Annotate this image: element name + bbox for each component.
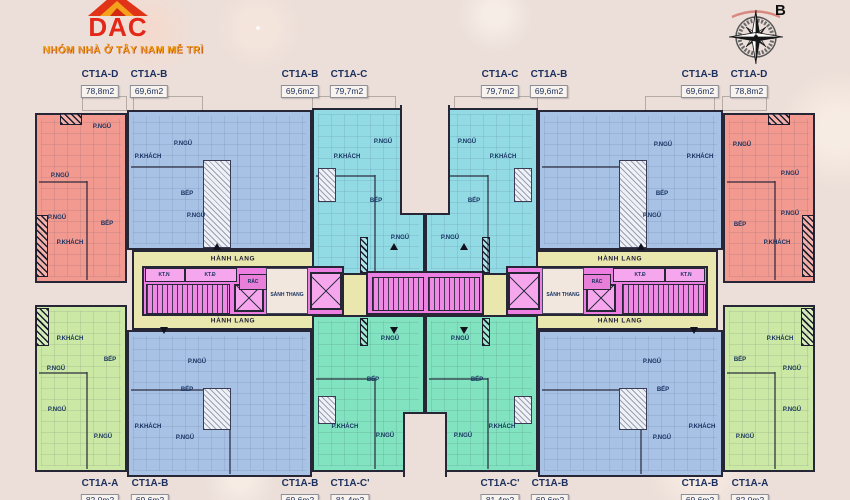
room-label: P.NGỦ bbox=[391, 235, 409, 241]
room-label: P.NGỦ bbox=[783, 366, 801, 372]
room-label: P.KHÁCH bbox=[332, 424, 359, 430]
balcony-hatch bbox=[482, 318, 490, 346]
room-label: P.KHÁCH bbox=[57, 240, 84, 246]
staircase bbox=[622, 284, 706, 314]
unit-callout-ct1a-b: CT1A-B69,6m2 bbox=[681, 478, 719, 500]
room-label: P.NGỦ bbox=[188, 359, 206, 365]
unit-callout-area: 69,6m2 bbox=[130, 85, 168, 98]
interior-wall bbox=[774, 181, 776, 280]
unit-callout-area: 69,6m2 bbox=[281, 85, 319, 98]
unit-callout-name: CT1A-A bbox=[731, 478, 769, 489]
interior-wall bbox=[727, 181, 775, 183]
room-label: P.KHÁCH bbox=[687, 154, 714, 160]
unit-callout-ct1a-cp: CT1A-C'81,4m2 bbox=[330, 478, 369, 500]
unit-callout-area: 81,4m2 bbox=[481, 494, 519, 500]
core-label: RÁC bbox=[248, 279, 259, 285]
unit-callout-area: 82,0m2 bbox=[731, 494, 769, 500]
interior-wall bbox=[86, 372, 88, 469]
balcony-hatch bbox=[360, 318, 368, 346]
elevator bbox=[508, 272, 540, 310]
room-label: P.NGỦ bbox=[451, 336, 469, 342]
staircase bbox=[146, 284, 230, 314]
entry-arrow-icon bbox=[390, 243, 398, 250]
bathroom-block bbox=[203, 388, 231, 430]
room-label: P.NGỦ bbox=[47, 366, 65, 372]
room-label: P.KHÁCH bbox=[490, 154, 517, 160]
room-label: P.NGỦ bbox=[93, 124, 111, 130]
balcony-hatch bbox=[60, 113, 82, 125]
room-label: BẾP bbox=[656, 191, 668, 197]
unit-callout-name: CT1A-B bbox=[531, 478, 569, 489]
room-label: P.NGỦ bbox=[94, 434, 112, 440]
balcony-hatch bbox=[36, 308, 49, 346]
room-label: BẾP bbox=[471, 377, 483, 383]
unit-callout-ct1a-b: CT1A-B69,6m2 bbox=[681, 69, 719, 99]
unit-callout-area: 69,6m2 bbox=[681, 494, 719, 500]
unit-callout-name: CT1A-C' bbox=[480, 478, 519, 489]
interior-wall bbox=[374, 175, 376, 272]
room-label: P.NGỦ bbox=[654, 142, 672, 148]
room-label: P.NGỦ bbox=[48, 215, 66, 221]
unit-callout-ct1a-cp: CT1A-C'81,4m2 bbox=[480, 478, 519, 500]
unit-callout-ct1a-b: CT1A-B69,6m2 bbox=[281, 478, 319, 500]
corridor-label: HÀNH LANG bbox=[211, 256, 255, 263]
unit-callout-name: CT1A-A bbox=[81, 478, 119, 489]
unit-callout-ct1a-b: CT1A-B69,6m2 bbox=[130, 69, 168, 99]
interior-wall bbox=[374, 378, 376, 469]
stair-lobby bbox=[266, 268, 308, 314]
core-label: KT.Đ bbox=[634, 272, 645, 278]
room-label: P.NGỦ bbox=[781, 171, 799, 177]
room-label: P.NGỦ bbox=[174, 141, 192, 147]
unit-callout-name: CT1A-B bbox=[530, 69, 568, 80]
core-label: KT.Đ bbox=[204, 272, 215, 278]
unit-callout-ct1a-b: CT1A-B69,6m2 bbox=[530, 69, 568, 99]
balcony-hatch bbox=[482, 237, 490, 273]
staircase bbox=[372, 277, 424, 311]
unit-callout-area: 69,6m2 bbox=[131, 494, 169, 500]
room-label: P.NGỦ bbox=[187, 213, 205, 219]
floor-plan: HÀNH LANGHÀNH LANGHÀNH LANGHÀNH LANGKT.N… bbox=[0, 0, 850, 500]
slogan-text: NHÓM NHÀ Ở TÂY NAM MỄ TRÌ bbox=[18, 45, 228, 56]
unit-callout-area: 69,6m2 bbox=[681, 85, 719, 98]
balcony-hatch bbox=[802, 215, 814, 277]
entry-arrow-icon bbox=[160, 327, 168, 334]
compass-north-label: B bbox=[775, 2, 786, 19]
unit-callout-name: CT1A-D bbox=[81, 69, 119, 80]
balcony-hatch bbox=[360, 237, 368, 273]
room-label: BẾP bbox=[657, 387, 669, 393]
unit-callout-ct1a-a: CT1A-A82,0m2 bbox=[81, 478, 119, 500]
room-label: P.KHÁCH bbox=[57, 336, 84, 342]
room-label: P.KHÁCH bbox=[489, 424, 516, 430]
entry-arrow-icon bbox=[690, 327, 698, 334]
unit-callout-name: CT1A-C' bbox=[330, 478, 369, 489]
room-label: P.NGỦ bbox=[441, 235, 459, 241]
entry-arrow-icon bbox=[390, 327, 398, 334]
unit-furniture-texture bbox=[41, 311, 121, 466]
facade-notch-top bbox=[400, 105, 450, 215]
interior-wall bbox=[86, 181, 88, 280]
room-label: P.KHÁCH bbox=[135, 424, 162, 430]
room-label: P.NGỦ bbox=[458, 139, 476, 145]
corridor-label: HÀNH LANG bbox=[598, 256, 642, 263]
unit-callout-ct1a-c: CT1A-C79,7m2 bbox=[330, 69, 368, 99]
room-label: P.KHÁCH bbox=[764, 240, 791, 246]
unit-callout-area: 69,6m2 bbox=[281, 494, 319, 500]
core-label: SẢNH THANG bbox=[270, 292, 303, 298]
unit-callout-ct1a-d: CT1A-D78,8m2 bbox=[81, 69, 119, 99]
room-label: P.NGỦ bbox=[733, 142, 751, 148]
unit-ct1a-d-d1 bbox=[35, 113, 127, 283]
unit-callout-ct1a-c: CT1A-C79,7m2 bbox=[481, 69, 519, 99]
room-label: BẾP bbox=[181, 387, 193, 393]
room-label: P.NGỦ bbox=[781, 211, 799, 217]
unit-callout-area: 78,8m2 bbox=[81, 85, 119, 98]
staircase bbox=[428, 277, 480, 311]
dac-logo: DAC NHÓM NHÀ Ở TÂY NAM MỄ TRÌ bbox=[0, 0, 240, 64]
room-label: P.NGỦ bbox=[176, 435, 194, 441]
unit-callout-name: CT1A-B bbox=[281, 478, 319, 489]
bathroom-block bbox=[514, 396, 532, 424]
unit-callout-name: CT1A-D bbox=[730, 69, 768, 80]
unit-callout-name: CT1A-C bbox=[481, 69, 519, 80]
core-label: RÁC bbox=[592, 279, 603, 285]
entry-arrow-icon bbox=[460, 243, 468, 250]
elevator bbox=[310, 272, 342, 310]
unit-furniture-texture bbox=[41, 119, 121, 277]
bathroom-block bbox=[619, 160, 647, 248]
room-label: P.NGỦ bbox=[48, 407, 66, 413]
room-label: P.NGỦ bbox=[381, 336, 399, 342]
unit-callout-ct1a-b: CT1A-B69,6m2 bbox=[281, 69, 319, 99]
room-label: P.NGỦ bbox=[783, 407, 801, 413]
facade-notch-bottom bbox=[403, 412, 447, 477]
unit-callout-area: 82,0m2 bbox=[81, 494, 119, 500]
bathroom-block bbox=[203, 160, 231, 248]
entry-arrow-icon bbox=[213, 243, 221, 250]
unit-callout-name: CT1A-B bbox=[681, 478, 719, 489]
room-label: BẾP bbox=[104, 357, 116, 363]
room-label: BẾP bbox=[734, 357, 746, 363]
interior-wall bbox=[727, 372, 775, 374]
room-label: P.NGỦ bbox=[736, 434, 754, 440]
room-label: P.KHÁCH bbox=[135, 154, 162, 160]
unit-callout-name: CT1A-B bbox=[131, 478, 169, 489]
room-label: P.NGỦ bbox=[51, 173, 69, 179]
bathroom-block bbox=[318, 396, 336, 424]
room-label: BẾP bbox=[181, 191, 193, 197]
room-label: P.NGỦ bbox=[374, 139, 392, 145]
unit-callout-name: CT1A-C bbox=[330, 69, 368, 80]
room-label: BẾP bbox=[370, 198, 382, 204]
unit-furniture-texture bbox=[729, 311, 809, 466]
balcony-hatch bbox=[768, 113, 790, 125]
room-label: BẾP bbox=[468, 198, 480, 204]
floorplan-page: DAC NHÓM NHÀ Ở TÂY NAM MỄ TRÌ B HÀNH LAN… bbox=[0, 0, 850, 500]
entry-arrow-icon bbox=[637, 243, 645, 250]
core-label: KT.N bbox=[158, 272, 169, 278]
core-label: KT.N bbox=[680, 272, 691, 278]
room-label: P.KHÁCH bbox=[689, 424, 716, 430]
unit-callout-ct1a-d: CT1A-D78,8m2 bbox=[730, 69, 768, 99]
bathroom-block bbox=[514, 168, 532, 202]
room-label: BẾP bbox=[367, 377, 379, 383]
unit-callout-area: 69,6m2 bbox=[531, 494, 569, 500]
unit-callout-ct1a-b: CT1A-B69,6m2 bbox=[531, 478, 569, 500]
balcony-hatch bbox=[801, 308, 814, 346]
stair-lobby bbox=[542, 268, 584, 314]
unit-callout-ct1a-a: CT1A-A82,0m2 bbox=[731, 478, 769, 500]
unit-callout-area: 69,6m2 bbox=[530, 85, 568, 98]
compass: B bbox=[715, 2, 799, 70]
unit-callout-name: CT1A-B bbox=[681, 69, 719, 80]
room-label: BẾP bbox=[101, 221, 113, 227]
interior-wall bbox=[774, 372, 776, 469]
unit-callout-area: 78,8m2 bbox=[730, 85, 768, 98]
interior-wall bbox=[39, 181, 87, 183]
room-label: P.NGỦ bbox=[643, 213, 661, 219]
bathroom-block bbox=[619, 388, 647, 430]
unit-callout-area: 79,7m2 bbox=[481, 85, 519, 98]
unit-callout-area: 81,4m2 bbox=[331, 494, 369, 500]
balcony-hatch bbox=[36, 215, 48, 277]
room-label: P.KHÁCH bbox=[767, 336, 794, 342]
unit-callout-ct1a-b: CT1A-B69,6m2 bbox=[131, 478, 169, 500]
room-label: BẾP bbox=[734, 222, 746, 228]
room-label: P.NGỦ bbox=[454, 433, 472, 439]
core-label: SẢNH THANG bbox=[546, 292, 579, 298]
room-label: P.KHÁCH bbox=[334, 154, 361, 160]
room-label: P.NGỦ bbox=[376, 433, 394, 439]
entry-arrow-icon bbox=[460, 327, 468, 334]
logo-text: DAC bbox=[84, 12, 152, 43]
room-label: P.NGỦ bbox=[653, 435, 671, 441]
bathroom-block bbox=[318, 168, 336, 202]
unit-callout-area: 79,7m2 bbox=[330, 85, 368, 98]
interior-wall bbox=[39, 372, 87, 374]
corridor-label: HÀNH LANG bbox=[211, 318, 255, 325]
room-label: P.NGỦ bbox=[643, 359, 661, 365]
unit-callout-name: CT1A-B bbox=[130, 69, 168, 80]
corridor-label: HÀNH LANG bbox=[598, 318, 642, 325]
unit-callout-name: CT1A-B bbox=[281, 69, 319, 80]
